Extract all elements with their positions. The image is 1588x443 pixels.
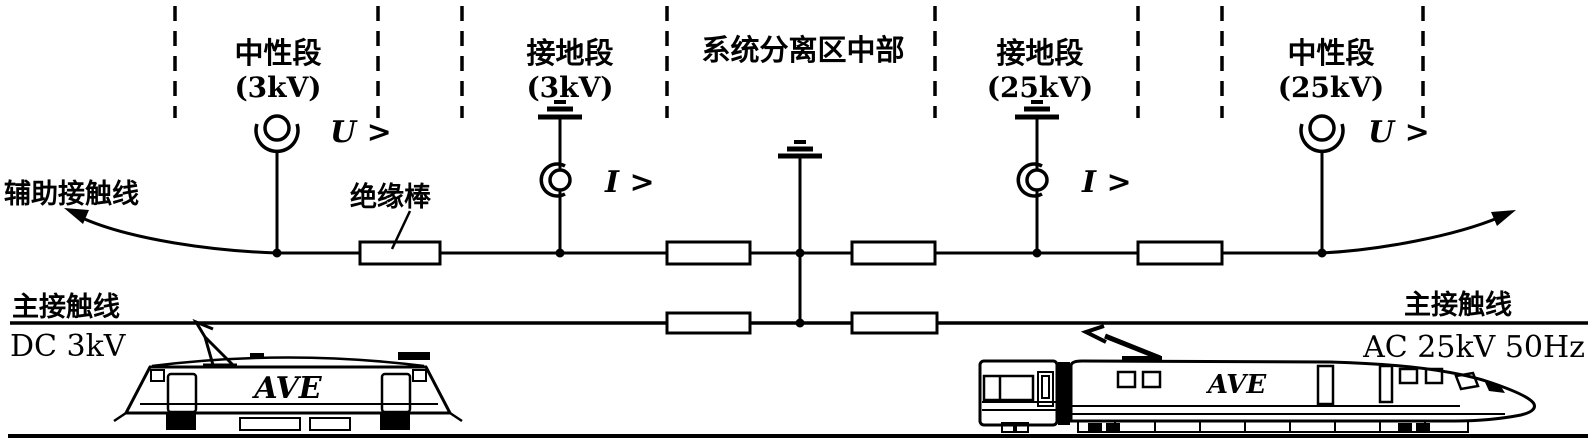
bogie-wheels: [166, 414, 196, 430]
insulator-box-icon: [667, 313, 750, 333]
bogie-wheels: [380, 414, 410, 430]
section-label-ground-3kv: 接地段: [526, 36, 613, 70]
gangway: [1058, 362, 1070, 425]
powercar-body: [1071, 361, 1534, 421]
current-relay-right-icon: [1015, 102, 1059, 253]
ground-icon: [1015, 102, 1059, 117]
powercar-wheel: [1398, 423, 1412, 431]
powercar-window: [1118, 372, 1135, 387]
powercar-door: [1380, 366, 1392, 402]
section-voltage-neutral-25kv: (25kV): [1278, 71, 1385, 104]
train-right-label: AVE: [1205, 370, 1267, 400]
locomotive-door: [168, 374, 196, 412]
section-voltage-3kv: (3kV): [234, 71, 321, 104]
insulator-box-icon: [360, 242, 440, 264]
powercar-wheel: [1106, 423, 1120, 431]
coach-window: [984, 376, 1033, 400]
current-relay-left-icon: [538, 102, 582, 253]
current-relay-label-left: I >: [604, 165, 655, 200]
insulator-box-icon: [852, 242, 935, 264]
phase-separation-diagram: 中性段 (3kV) 接地段 (3kV) 系统分离区中部 接地段 (25kV) 中…: [0, 0, 1588, 443]
ground-icon: [538, 102, 582, 117]
ac-system-label: AC 25kV 50Hz: [1362, 330, 1585, 365]
powercar-window: [1143, 372, 1160, 387]
section-voltage-ground-25kv: (25kV): [987, 71, 1094, 104]
arrow-left-icon: [64, 208, 89, 224]
section-labels: 中性段 (3kV) 接地段 (3kV) 系统分离区中部 接地段 (25kV) 中…: [234, 33, 1384, 104]
section-label-neutral-25kv: 中性段: [1287, 36, 1374, 70]
powercar-window: [1400, 369, 1417, 383]
locomotive-window: [151, 370, 164, 381]
insulator-rod-label: 绝缘棒: [350, 181, 432, 213]
coach-door: [1038, 372, 1053, 406]
train-left: AVE: [114, 322, 462, 430]
insulator-box-icon: [1138, 242, 1222, 264]
pantograph-right-icon: [1086, 326, 1162, 362]
aux-wire-left-curve: [80, 217, 277, 253]
locomotive-roof: [152, 358, 424, 367]
main-contact-line-label-right: 主接触线: [1404, 290, 1512, 321]
section-label-middle: 系统分离区中部: [701, 33, 904, 67]
section-voltage-ground-3kv: (3kV): [526, 71, 613, 104]
aux-contact-line-label: 辅助接触线: [4, 179, 139, 210]
underbody-skirt: [310, 418, 350, 430]
aux-wire-right-curve: [1322, 217, 1500, 253]
main-contact-line-label-left: 主接触线: [12, 292, 120, 323]
auxiliary-contact-line: [64, 208, 1516, 264]
train-left-label: AVE: [251, 371, 322, 406]
insulator-box-icon: [852, 313, 937, 333]
center-ground-icon: [778, 142, 822, 323]
powercar-door: [1318, 366, 1333, 404]
voltage-relay-right-icon: [1301, 116, 1343, 253]
voltage-relay-label-right: U >: [1368, 115, 1430, 150]
coach-body: [980, 361, 1057, 425]
dc-system-label: DC 3kV: [10, 329, 127, 364]
skirt-dividers: [1115, 421, 1425, 432]
roof-vent: [250, 353, 264, 358]
voltage-relay-label-left: U >: [330, 115, 392, 150]
arrow-right-icon: [1491, 210, 1516, 226]
powercar-wheel: [1416, 423, 1430, 431]
powercar-wheel: [1088, 423, 1102, 431]
roof-vent: [398, 352, 430, 360]
insulator-box-icon: [667, 242, 750, 264]
locomotive-window: [413, 370, 426, 381]
section-label-neutral-3kv: 中性段: [234, 36, 321, 70]
locomotive-door: [382, 374, 410, 412]
voltage-relay-left-icon: [256, 116, 298, 253]
current-relay-label-right: I >: [1081, 165, 1132, 200]
section-label-ground-25kv: 接地段: [996, 36, 1083, 70]
underbody-skirt: [240, 418, 300, 430]
diagram-canvas: 中性段 (3kV) 接地段 (3kV) 系统分离区中部 接地段 (25kV) 中…: [0, 0, 1588, 443]
